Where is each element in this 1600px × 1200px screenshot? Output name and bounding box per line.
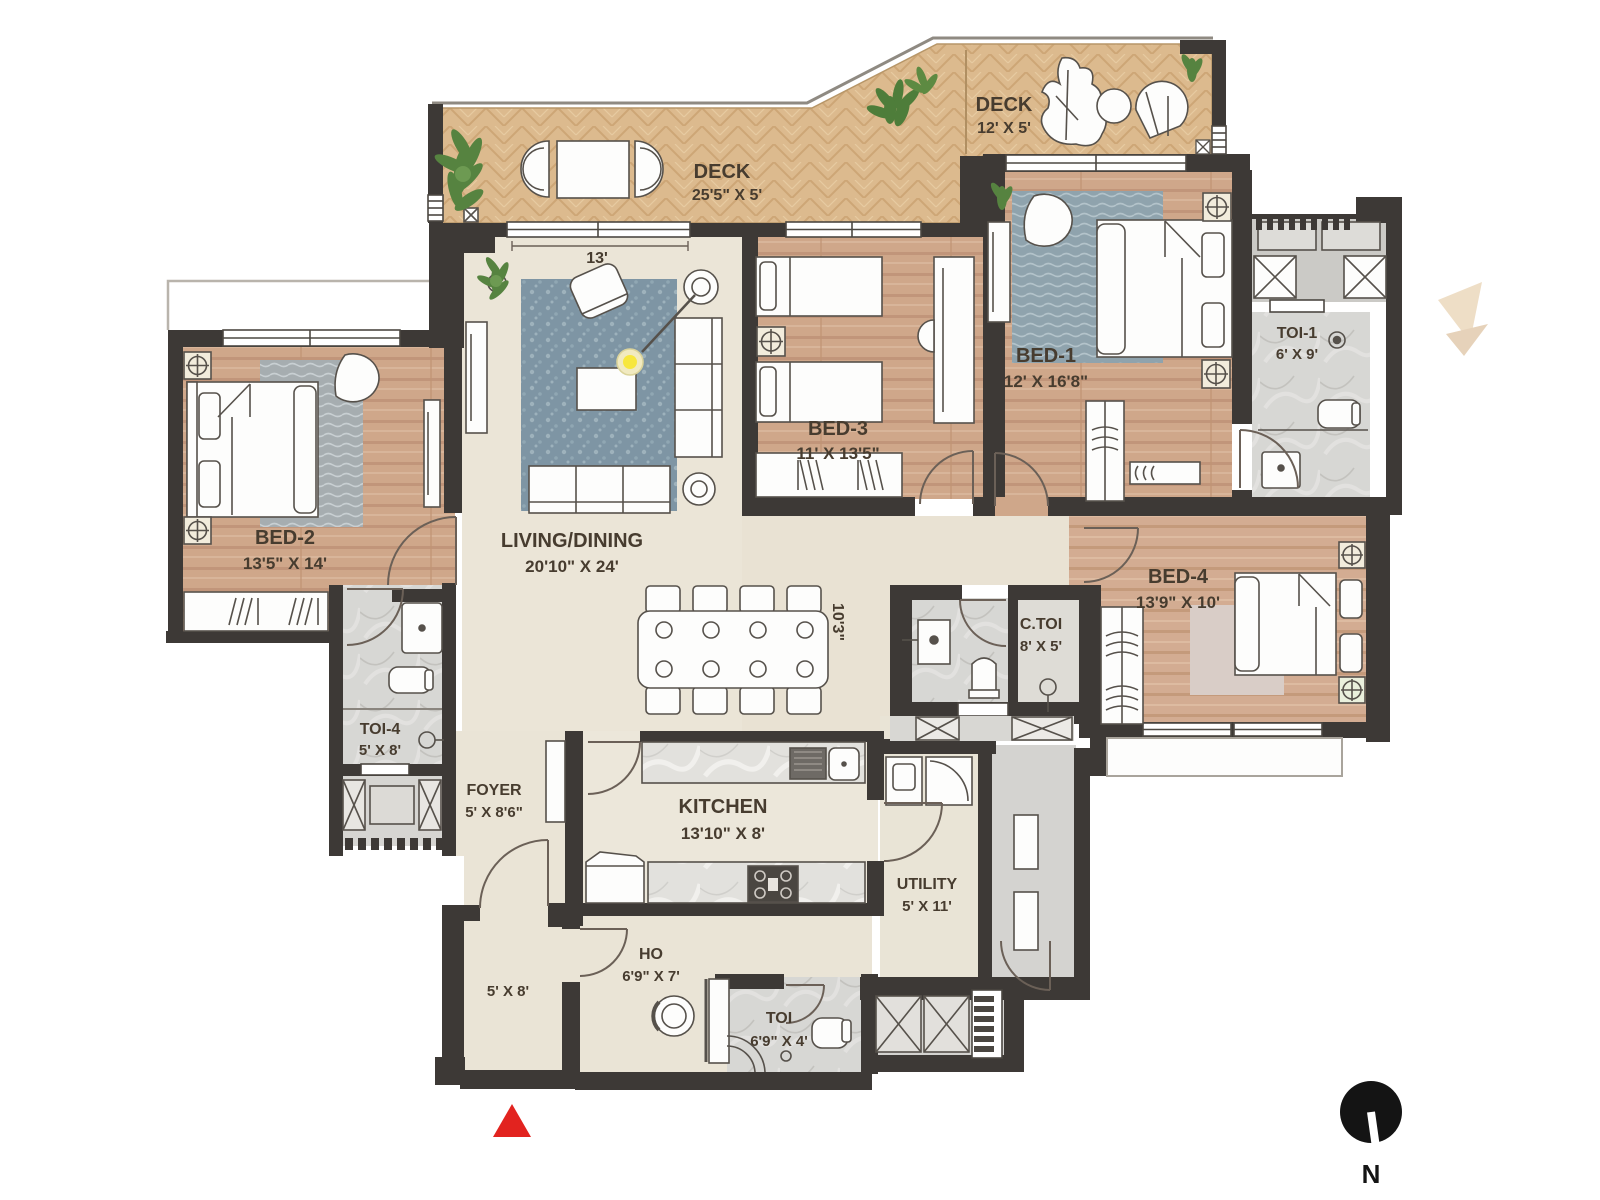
svg-text:BED-3: BED-3 <box>808 418 868 440</box>
svg-text:BED-2: BED-2 <box>255 527 315 549</box>
svg-text:TOI-1: TOI-1 <box>1277 325 1318 342</box>
svg-text:5' X 8': 5' X 8' <box>487 983 529 1000</box>
svg-text:KITCHEN: KITCHEN <box>679 796 768 818</box>
svg-text:N: N <box>1362 1159 1381 1189</box>
svg-text:5' X 8': 5' X 8' <box>359 742 401 759</box>
svg-text:DECK: DECK <box>694 161 751 183</box>
svg-text:TOI: TOI <box>766 1010 792 1027</box>
svg-text:12' X 16'8": 12' X 16'8" <box>1004 372 1088 391</box>
svg-text:6'9" X 4': 6'9" X 4' <box>750 1033 808 1050</box>
svg-text:12' X 5': 12' X 5' <box>977 120 1031 137</box>
svg-text:8' X 5': 8' X 5' <box>1020 638 1062 655</box>
svg-text:20'10" X 24': 20'10" X 24' <box>525 557 619 576</box>
svg-text:6'9" X 7': 6'9" X 7' <box>622 968 680 985</box>
svg-text:LIVING/DINING: LIVING/DINING <box>501 530 643 552</box>
svg-text:10'3": 10'3" <box>829 603 846 641</box>
svg-text:6' X 9': 6' X 9' <box>1276 346 1318 363</box>
svg-text:13'10" X 8': 13'10" X 8' <box>681 824 765 843</box>
svg-text:FOYER: FOYER <box>466 782 522 799</box>
svg-text:25'5" X 5': 25'5" X 5' <box>692 187 762 204</box>
svg-text:BED-1: BED-1 <box>1016 345 1076 367</box>
svg-text:11' X 13'5": 11' X 13'5" <box>796 444 879 463</box>
svg-text:BED-4: BED-4 <box>1148 566 1209 588</box>
svg-text:13': 13' <box>586 250 608 267</box>
svg-text:TOI-4: TOI-4 <box>360 721 401 738</box>
svg-text:HO: HO <box>639 946 663 963</box>
svg-text:5' X 8'6": 5' X 8'6" <box>465 804 523 821</box>
svg-text:DECK: DECK <box>976 94 1033 116</box>
svg-text:13'5" X 14': 13'5" X 14' <box>243 554 327 573</box>
svg-text:5' X 11': 5' X 11' <box>902 898 952 915</box>
svg-text:UTILITY: UTILITY <box>897 876 958 893</box>
svg-text:C.TOI: C.TOI <box>1020 616 1062 633</box>
svg-text:13'9" X 10': 13'9" X 10' <box>1136 593 1220 612</box>
